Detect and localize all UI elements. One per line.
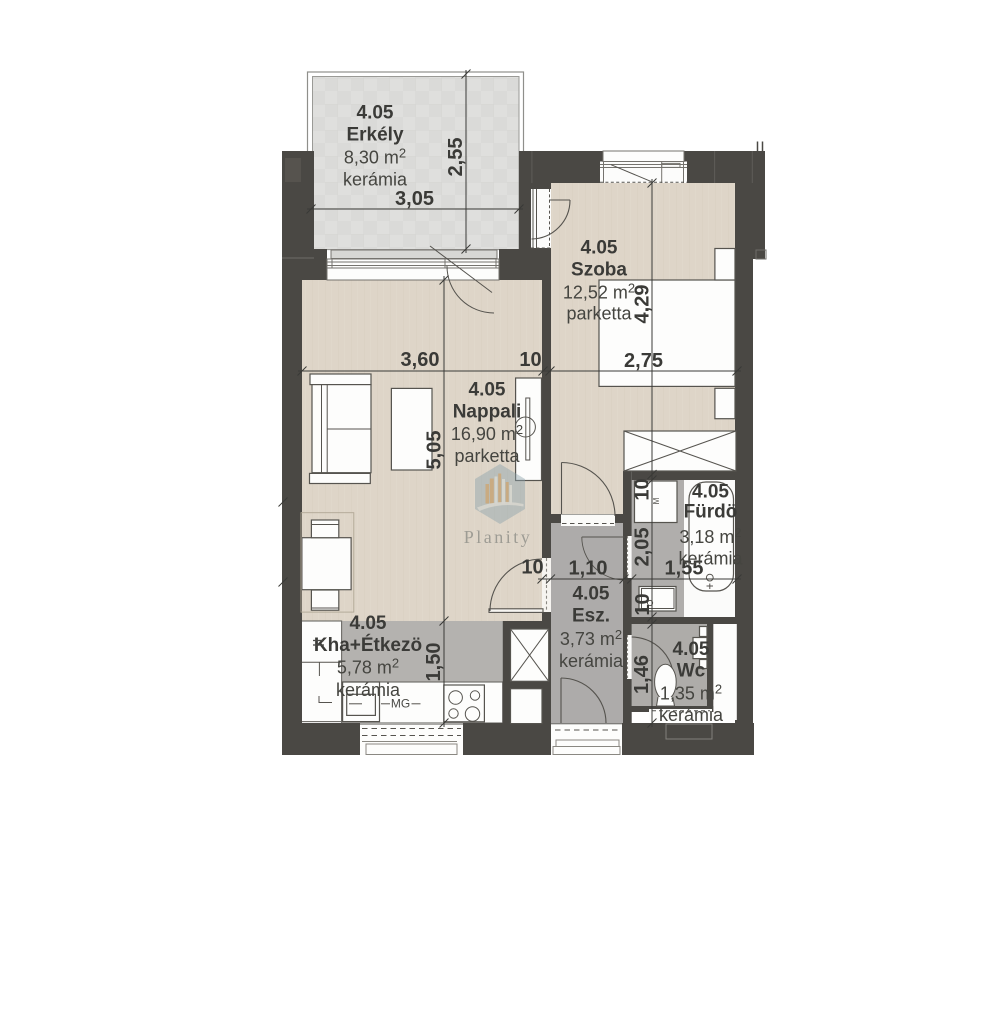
svg-text:16,90 m2: 16,90 m2	[451, 422, 523, 444]
svg-text:4.05: 4.05	[573, 584, 610, 605]
svg-text:8,30 m2: 8,30 m2	[344, 146, 406, 168]
svg-text:2,75: 2,75	[624, 350, 663, 372]
svg-text:kerámia: kerámia	[559, 651, 624, 671]
svg-text:4.05: 4.05	[581, 238, 618, 259]
svg-text:1,10: 1,10	[569, 558, 608, 580]
svg-text:10: 10	[519, 349, 541, 371]
svg-text:Nappali: Nappali	[453, 402, 522, 423]
svg-text:1,35 m2: 1,35 m2	[660, 682, 722, 704]
svg-text:1,50: 1,50	[423, 643, 445, 682]
svg-text:kerámia: kerámia	[678, 549, 743, 569]
svg-text:5,78 m2: 5,78 m2	[337, 656, 399, 678]
svg-text:Esz.: Esz.	[572, 606, 610, 627]
svg-text:12,52 m2: 12,52 m2	[563, 281, 635, 303]
svg-text:3,05: 3,05	[395, 188, 434, 210]
svg-text:parketta: parketta	[454, 446, 520, 466]
svg-text:4.05: 4.05	[350, 613, 387, 634]
svg-text:5,05: 5,05	[424, 431, 446, 470]
svg-text:Kha+Étkezö: Kha+Étkezö	[314, 634, 422, 656]
svg-text:Fürdö: Fürdö	[684, 502, 738, 523]
svg-text:3,18 m2: 3,18 m2	[679, 525, 741, 547]
svg-text:4.05: 4.05	[673, 639, 710, 660]
svg-text:2,05: 2,05	[632, 528, 654, 567]
svg-text:Planity: Planity	[464, 527, 533, 547]
svg-text:10: 10	[632, 593, 654, 615]
svg-text:MG: MG	[391, 697, 410, 711]
svg-text:kerámia: kerámia	[659, 705, 724, 725]
svg-text:Szoba: Szoba	[571, 260, 627, 281]
svg-text:10: 10	[632, 478, 654, 500]
svg-text:4.05: 4.05	[357, 103, 394, 124]
svg-text:10: 10	[521, 557, 543, 579]
svg-text:1,46: 1,46	[631, 655, 653, 694]
svg-text:M: M	[652, 497, 661, 504]
svg-text:Wc: Wc	[677, 661, 706, 682]
svg-text:kerámia: kerámia	[343, 170, 408, 190]
svg-text:4.05: 4.05	[469, 380, 506, 401]
svg-text:3,60: 3,60	[401, 349, 440, 371]
svg-text:Erkély: Erkély	[346, 125, 403, 146]
svg-text:parketta: parketta	[566, 304, 632, 324]
svg-text:2,55: 2,55	[445, 138, 467, 177]
svg-text:4.05: 4.05	[692, 482, 729, 503]
svg-text:3,73 m2: 3,73 m2	[560, 627, 622, 649]
